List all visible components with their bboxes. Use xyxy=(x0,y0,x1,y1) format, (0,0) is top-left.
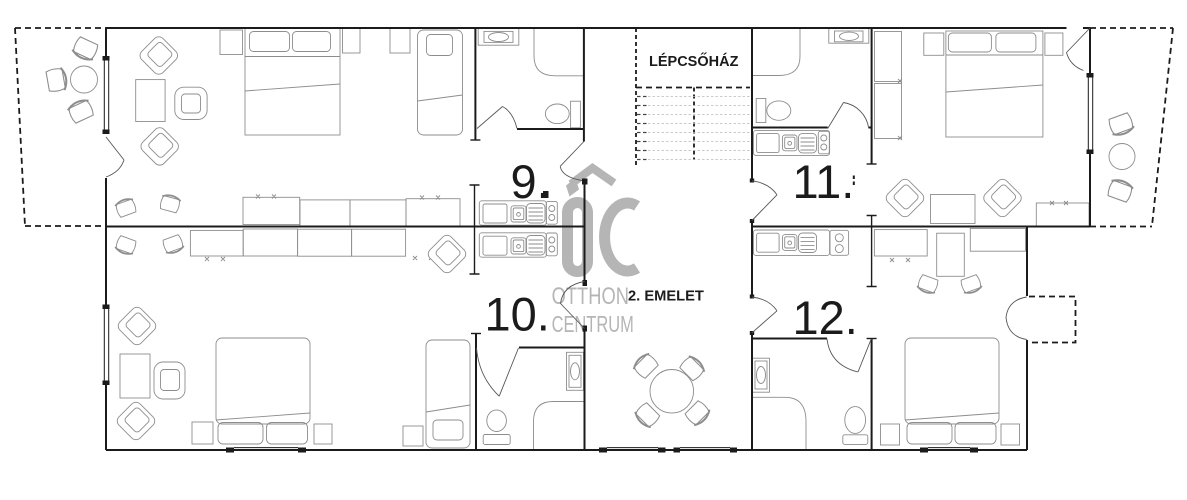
svg-text:9.: 9. xyxy=(511,155,550,208)
svg-text:2. EMELET: 2. EMELET xyxy=(628,289,704,305)
svg-text:CENTRUM: CENTRUM xyxy=(552,312,634,337)
svg-text:11.: 11. xyxy=(793,155,855,208)
svg-text:OTTHON: OTTHON xyxy=(552,283,629,310)
svg-text:10.: 10. xyxy=(485,288,550,341)
svg-text:12.: 12. xyxy=(793,291,858,344)
svg-text:LÉPCSŐHÁZ: LÉPCSŐHÁZ xyxy=(649,52,739,70)
